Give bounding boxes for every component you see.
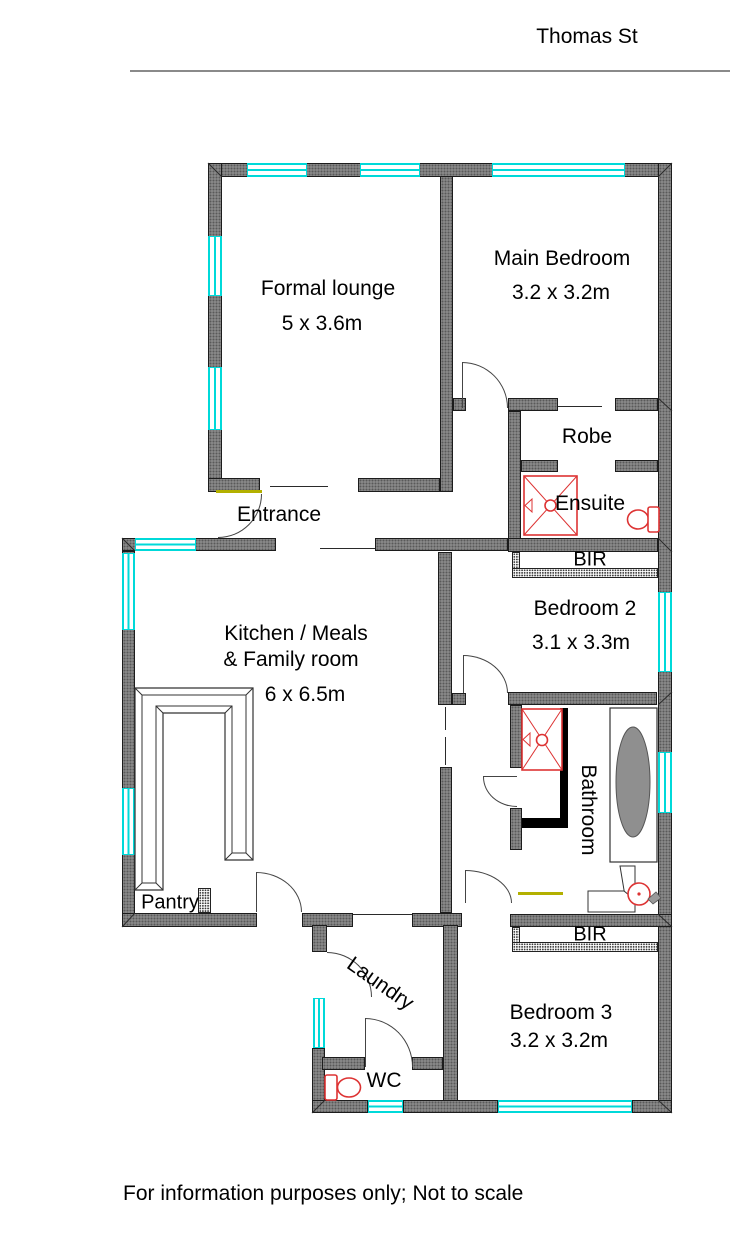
room-label-pantry: Pantry — [141, 892, 199, 915]
room-label-bedroom2: Bedroom 2 — [534, 597, 637, 621]
room-dims-bedroom2: 3.1 x 3.3m — [532, 631, 630, 655]
room-label-entrance: Entrance — [237, 503, 321, 527]
room-label-bir-ensuite: BIR — [573, 549, 606, 572]
room-label-robe: Robe — [562, 425, 612, 449]
room-label-kitchen-2: & Family room — [223, 648, 358, 672]
room-dims-formal-lounge: 5 x 3.6m — [282, 312, 363, 336]
room-label-main-bedroom: Main Bedroom — [494, 247, 631, 271]
room-label-bedroom3: Bedroom 3 — [510, 1001, 613, 1025]
shower-bathroom-icon — [522, 709, 562, 770]
room-label-bir-bedroom3: BIR — [573, 924, 606, 947]
kitchen-bench — [135, 688, 253, 890]
basin-drain — [637, 892, 640, 895]
room-dims-bedroom3: 3.2 x 3.2m — [510, 1029, 608, 1053]
room-label-formal-lounge: Formal lounge — [261, 277, 395, 301]
disclaimer-text: For information purposes only; Not to sc… — [123, 1182, 523, 1206]
room-label-wc: WC — [367, 1069, 402, 1093]
fixtures-layer — [0, 0, 756, 1243]
room-dims-kitchen: 6 x 6.5m — [265, 683, 346, 707]
bathtub — [616, 727, 650, 837]
toilet-wc-icon — [325, 1075, 361, 1100]
room-label-ensuite: Ensuite — [555, 492, 625, 516]
room-dims-main-bedroom: 3.2 x 3.2m — [512, 281, 610, 305]
toilet-ensuite-icon — [628, 507, 660, 532]
room-label-bathroom: Bathroom — [576, 764, 600, 855]
floor-plan: Thomas St — [0, 0, 756, 1243]
room-label-kitchen: Kitchen / Meals — [224, 622, 368, 646]
street-label: Thomas St — [536, 25, 638, 49]
